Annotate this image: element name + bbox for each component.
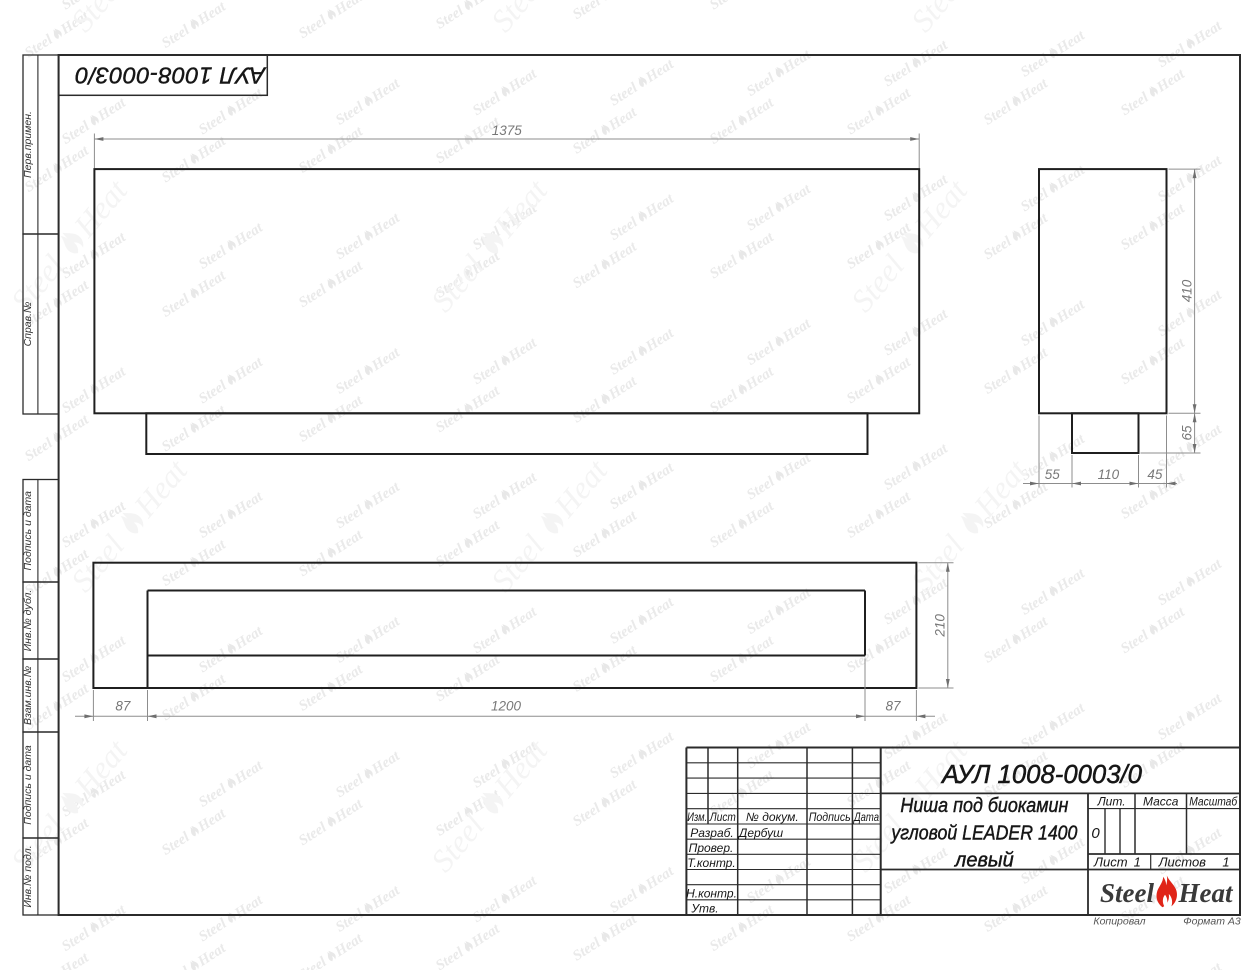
svg-text:Steel: Steel [296,416,330,446]
svg-text:Heat: Heat [779,719,814,750]
svg-text:Steel: Steel [196,781,230,811]
svg-text:Steel: Steel [159,291,193,321]
svg-text:Steel: Steel [744,339,778,369]
svg-text:Утв.: Утв. [690,901,718,915]
svg-text:Heat: Heat [1053,296,1088,327]
svg-text:Steel: Steel [159,963,193,970]
svg-text:1375: 1375 [492,123,523,138]
svg-text:Steel: Steel [707,925,741,955]
svg-text:Steel: Steel [707,521,741,551]
svg-text:Heat: Heat [94,901,129,932]
svg-text:Steel: Steel [744,473,778,503]
svg-text:Копировал: Копировал [1093,916,1145,928]
svg-text:Heat: Heat [66,732,135,804]
svg-text:Steel: Steel [881,329,915,359]
svg-text:Heat: Heat [368,613,403,644]
svg-text:Подпись и дата: Подпись и дата [22,491,34,571]
svg-text:Steel: Steel [1118,89,1152,119]
svg-text:Формат А3: Формат А3 [1183,916,1241,928]
svg-text:Steel: Steel [296,550,330,580]
svg-text:Heat: Heat [779,315,814,346]
svg-text:Heat: Heat [966,452,1035,524]
svg-text:Heat: Heat [916,37,951,68]
svg-text:Steel: Steel [981,233,1015,263]
svg-text:Steel: Steel [196,108,230,138]
svg-text:Изм.: Изм. [687,810,707,824]
svg-text:Steel: Steel [22,435,56,465]
svg-text:Steel: Steel [433,3,467,33]
svg-text:Heat: Heat [605,777,640,808]
svg-text:110: 110 [1098,467,1120,482]
svg-text:Steel: Steel [424,808,492,879]
svg-text:Steel: Steel [607,79,641,109]
svg-text:Heat: Heat [1016,75,1051,106]
svg-text:Heat: Heat [331,796,366,827]
svg-text:Heat: Heat [468,517,503,548]
svg-text:№ докум.: № докум. [746,810,799,824]
svg-text:Heat: Heat [642,729,677,760]
svg-text:Heat: Heat [1190,556,1225,587]
svg-text:Steel: Steel [844,108,878,138]
svg-text:Steel: Steel [470,493,504,523]
svg-text:Heat: Heat [605,104,640,135]
svg-text:Steel: Steel [1018,858,1052,888]
svg-text:Heat: Heat [1153,66,1188,97]
svg-text:Heat: Heat [642,594,677,625]
svg-text:Steel: Steel [296,954,330,970]
svg-text:Heat: Heat [779,181,814,212]
svg-text:Steel: Steel [570,800,604,830]
svg-text:Steel: Steel [607,483,641,513]
svg-text:Взам.инв.№: Взам.инв.№ [22,666,34,725]
svg-text:Steel: Steel [1018,723,1052,753]
svg-text:Heat: Heat [1053,162,1088,193]
svg-text:Листов: Листов [1158,854,1207,869]
svg-text:Heat: Heat [1016,882,1051,913]
svg-text:Heat: Heat [331,0,366,19]
svg-text:Heat: Heat [368,748,403,779]
svg-text:Steel: Steel [1155,41,1189,71]
svg-text:Steel: Steel [607,214,641,244]
svg-text:Steel: Steel [433,541,467,571]
svg-text:Heat: Heat [368,210,403,241]
svg-text:Heat: Heat [194,671,229,702]
svg-text:Steel: Steel [59,118,93,148]
svg-text:Heat: Heat [468,383,503,414]
svg-text:Heat: Heat [94,94,129,125]
svg-text:Heat: Heat [605,239,640,270]
svg-text:Steel: Steel [570,531,604,561]
svg-text:Steel: Steel [470,627,504,657]
svg-text:Steel: Steel [296,281,330,311]
svg-text:Т.контр.: Т.контр. [687,856,735,870]
svg-text:Heat: Heat [1190,152,1225,183]
svg-text:Steel: Steel [707,252,741,282]
svg-text:0: 0 [1091,825,1100,842]
svg-text:Steel: Steel [333,368,367,398]
svg-text:Steel: Steel [1018,589,1052,619]
svg-text:Heat: Heat [642,191,677,222]
svg-text:Heat: Heat [1053,700,1088,731]
svg-text:Heat: Heat [879,892,914,923]
svg-text:Steel: Steel [744,877,778,907]
svg-text:Steel: Steel [1118,224,1152,254]
svg-text:Steel: Steel [333,99,367,129]
svg-text:Steel: Steel [470,358,504,388]
svg-text:Heat: Heat [1053,431,1088,462]
svg-text:Heat: Heat [231,892,266,923]
svg-text:65: 65 [1180,425,1195,441]
svg-text:Steel: Steel [1155,714,1189,744]
svg-text:Heat: Heat [331,392,366,423]
svg-text:210: 210 [933,614,948,638]
svg-text:Heat: Heat [505,469,540,500]
svg-text:Steel: Steel [1118,493,1152,523]
svg-text:Steel: Steel [744,608,778,638]
svg-text:Подпись: Подпись [809,810,851,824]
svg-text:Heat: Heat [916,306,951,337]
svg-text:Steel: Steel [296,685,330,715]
svg-text:Steel: Steel [570,127,604,157]
svg-text:Heat: Heat [1190,825,1225,856]
svg-text:Steel: Steel [196,646,230,676]
svg-text:Heat: Heat [1153,200,1188,231]
svg-text:Steel: Steel [159,156,193,186]
svg-text:Heat: Heat [1016,613,1051,644]
svg-text:Steel: Steel [881,598,915,628]
svg-text:Heat: Heat [742,94,777,125]
svg-text:Steel: Steel [1155,310,1189,340]
svg-text:Heat: Heat [906,172,975,244]
svg-text:левый: левый [954,850,1014,872]
svg-text:Steel: Steel [570,665,604,695]
svg-text:Heat: Heat [331,527,366,558]
svg-text:Steel: Steel [333,771,367,801]
svg-text:Steel: Steel [844,781,878,811]
svg-text:Heat: Heat [642,56,677,87]
svg-text:Steel: Steel [59,925,93,955]
svg-text:Heat: Heat [1016,344,1051,375]
svg-text:Steel: Steel [607,617,641,647]
svg-text:Steel: Steel [22,31,56,61]
svg-text:Heat: Heat [605,508,640,539]
svg-text:Heat: Heat [57,680,92,711]
svg-text:Steel: Steel [1118,627,1152,657]
svg-text:Heat: Heat [642,325,677,356]
svg-text:Steel: Steel [59,387,93,417]
svg-text:Лит.: Лит. [1096,795,1125,809]
svg-text:Heat: Heat [194,267,229,298]
svg-text:Масштаб: Масштаб [1189,795,1238,809]
svg-text:АУЛ 1008-0003/0: АУЛ 1008-0003/0 [940,759,1143,789]
svg-text:Heat: Heat [1190,287,1225,318]
svg-text:Н.контр.: Н.контр. [686,886,737,900]
svg-text:Провер.: Провер. [689,841,734,855]
svg-text:Heat: Heat [57,277,92,308]
svg-text:Steel: Steel [981,637,1015,667]
svg-text:АУЛ 1008-0003/0: АУЛ 1008-0003/0 [75,63,267,89]
svg-text:Steel: Steel [570,0,604,23]
svg-text:Steel: Steel [433,137,467,167]
svg-text:Steel: Steel [981,368,1015,398]
svg-text:Steel: Steel [881,867,915,897]
svg-text:Steel: Steel [904,0,972,38]
svg-text:1: 1 [1134,854,1141,869]
svg-text:Heat: Heat [231,623,266,654]
svg-text:55: 55 [1045,467,1061,482]
svg-text:Heat: Heat [194,805,229,836]
svg-text:Steel: Steel [881,464,915,494]
svg-text:Steel: Steel [707,118,741,148]
svg-text:Heat: Heat [742,229,777,260]
svg-text:Steel: Steel [159,560,193,590]
svg-text:Steel: Steel [59,656,93,686]
svg-text:Heat: Heat [916,440,951,471]
svg-text:Steel: Steel [4,248,72,319]
svg-text:Heat: Heat [94,632,129,663]
svg-text:Heat: Heat [331,930,366,961]
svg-text:Heat: Heat [1153,335,1188,366]
svg-text:Steel: Steel [1118,358,1152,388]
svg-text:Steel: Steel [159,425,193,455]
svg-text:Steel: Steel [333,502,367,532]
svg-text:Heat: Heat [368,75,403,106]
svg-text:Steel: Steel [159,22,193,52]
svg-text:Steel: Steel [196,915,230,945]
svg-text:Steel: Steel [296,819,330,849]
svg-text:Heat: Heat [1190,959,1225,970]
svg-text:45: 45 [1147,467,1163,482]
svg-text:Heat: Heat [231,757,266,788]
svg-text:Heat: Heat [194,402,229,433]
svg-text:Heat: Heat [194,940,229,970]
svg-text:Steel: Steel [159,829,193,859]
svg-text:Steel: Steel [1018,320,1052,350]
svg-text:Дата: Дата [852,810,879,824]
svg-text:Steel: Steel [333,906,367,936]
svg-text:410: 410 [1180,279,1195,302]
svg-text:Инв.№ подл.: Инв.№ подл. [22,845,34,907]
svg-text:87: 87 [115,699,131,714]
svg-text:Steel: Steel [744,70,778,100]
svg-text:угловой LEADER 1400: угловой LEADER 1400 [890,823,1078,845]
svg-text:Heat: Heat [57,142,92,173]
svg-text:Heat: Heat [505,335,540,366]
svg-text:1: 1 [1222,854,1229,869]
svg-text:Heat: Heat [57,949,92,970]
svg-text:Heat: Heat [779,853,814,884]
svg-text:Подпись и дата: Подпись и дата [22,745,34,825]
svg-text:Heat: Heat [194,133,229,164]
svg-text:Steel: Steel [296,12,330,42]
svg-text:Heat: Heat [1153,604,1188,635]
svg-text:Heat: Heat [126,452,195,524]
svg-text:Heat: Heat [1016,210,1051,241]
svg-text:Steel: Steel [744,204,778,234]
svg-text:Heat: Heat [368,344,403,375]
svg-text:Heat: Heat [468,921,503,952]
svg-text:Лист: Лист [709,810,736,824]
svg-text:Steel: Steel [470,89,504,119]
svg-text:Heat: Heat [879,488,914,519]
svg-text:Heat: Heat [779,46,814,77]
svg-text:Heat: Heat [505,873,540,904]
svg-text:Heat: Heat [605,373,640,404]
svg-text:Steel: Steel [196,377,230,407]
svg-text:Heat: Heat [546,452,615,524]
svg-text:Heat: Heat [742,632,777,663]
svg-text:Steel: Steel [433,406,467,436]
svg-text:Heat: Heat [94,363,129,394]
svg-text:Steel: Steel [433,675,467,705]
svg-text:Heat: Heat [1190,18,1225,49]
svg-text:Heat: Heat [368,882,403,913]
svg-text:Steel: Steel [570,934,604,964]
svg-text:Steel: Steel [1155,579,1189,609]
svg-text:Heat: Heat [505,66,540,97]
svg-text:Heat: Heat [231,219,266,250]
svg-text:Heat: Heat [194,0,229,29]
svg-text:Steel: Steel [707,0,741,13]
svg-text:Справ.№: Справ.№ [22,302,34,347]
svg-text:Дербуш: Дербуш [737,826,783,840]
svg-text:Heat: Heat [1053,565,1088,596]
svg-text:Steel: Steel [484,0,552,38]
svg-text:Steel: Steel [1155,176,1189,206]
svg-text:Steel: Steel [1100,878,1154,908]
svg-text:Heat: Heat [231,354,266,385]
svg-text:Масса: Масса [1143,795,1179,809]
svg-text:1200: 1200 [491,699,522,714]
svg-text:Лист: Лист [1093,854,1128,869]
svg-text:Steel: Steel [433,944,467,970]
svg-text:Steel: Steel [844,646,878,676]
svg-text:Heat: Heat [1178,878,1234,908]
svg-text:Steel: Steel [881,60,915,90]
svg-text:Steel: Steel [570,262,604,292]
svg-text:Ниша под биокамин: Ниша под биокамин [900,795,1068,817]
svg-text:Heat: Heat [505,604,540,635]
svg-text:87: 87 [885,699,901,714]
svg-text:Инв.№ дубл.: Инв.№ дубл. [22,590,34,652]
svg-text:Steel: Steel [333,233,367,263]
svg-text:Heat: Heat [779,584,814,615]
svg-text:Steel: Steel [607,752,641,782]
svg-text:Steel: Steel [607,348,641,378]
svg-text:Steel: Steel [981,906,1015,936]
svg-text:Heat: Heat [879,354,914,385]
svg-text:Heat: Heat [879,85,914,116]
svg-text:Heat: Heat [57,411,92,442]
svg-text:Heat: Heat [742,498,777,529]
svg-text:Steel: Steel [844,512,878,542]
svg-text:Heat: Heat [368,479,403,510]
svg-text:Steel: Steel [470,896,504,926]
svg-text:Steel: Steel [196,512,230,542]
svg-text:Steel: Steel [981,99,1015,129]
svg-text:Heat: Heat [1053,27,1088,58]
svg-text:Heat: Heat [642,460,677,491]
svg-text:Heat: Heat [1190,690,1225,721]
svg-text:Перв.примен.: Перв.примен. [22,111,34,178]
svg-text:Steel: Steel [159,694,193,724]
svg-text:Steel: Steel [296,147,330,177]
svg-text:Heat: Heat [742,363,777,394]
svg-text:Heat: Heat [605,642,640,673]
svg-text:Разраб.: Разраб. [690,826,733,840]
svg-text:Steel: Steel [1018,185,1052,215]
svg-text:Heat: Heat [331,258,366,289]
svg-text:Heat: Heat [331,123,366,154]
svg-text:Heat: Heat [879,623,914,654]
svg-text:Steel: Steel [570,396,604,426]
svg-text:Steel: Steel [844,377,878,407]
svg-text:Heat: Heat [742,901,777,932]
svg-text:Heat: Heat [66,172,135,244]
svg-text:Heat: Heat [642,863,677,894]
svg-text:Steel: Steel [196,243,230,273]
svg-text:Steel: Steel [607,886,641,916]
svg-text:Steel: Steel [333,637,367,667]
svg-text:Steel: Steel [844,0,878,4]
svg-text:Heat: Heat [231,488,266,519]
svg-text:Steel: Steel [707,656,741,686]
svg-text:Steel: Steel [844,915,878,945]
svg-text:Heat: Heat [1153,738,1188,769]
